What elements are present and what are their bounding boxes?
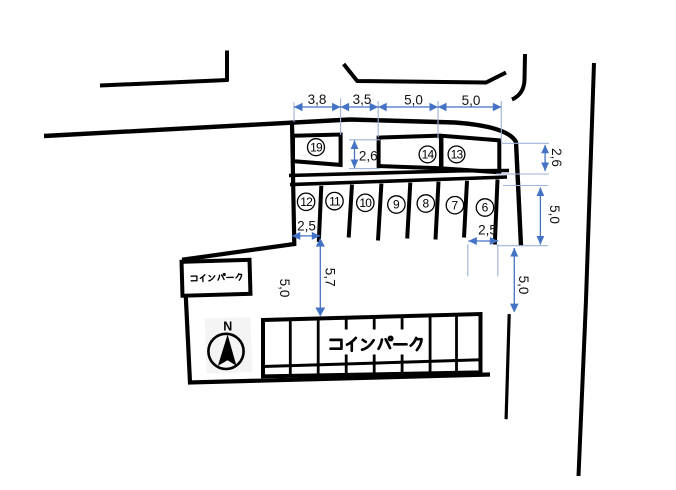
- svg-text:5,0: 5,0: [516, 276, 531, 295]
- svg-text:2,6: 2,6: [359, 149, 378, 164]
- svg-text:5,7: 5,7: [323, 268, 338, 287]
- svg-text:12: 12: [300, 195, 313, 209]
- svg-text:3,5: 3,5: [353, 92, 372, 107]
- svg-text:6: 6: [482, 201, 489, 215]
- svg-text:2,5: 2,5: [297, 219, 316, 234]
- svg-text:9: 9: [393, 198, 400, 212]
- svg-text:2,6: 2,6: [549, 148, 564, 167]
- svg-text:5,0: 5,0: [277, 279, 292, 298]
- svg-text:10: 10: [359, 196, 372, 210]
- svg-text:13: 13: [451, 148, 464, 162]
- svg-text:14: 14: [422, 148, 435, 162]
- svg-text:3,8: 3,8: [308, 92, 327, 107]
- svg-text:2,5: 2,5: [478, 223, 497, 238]
- svg-text:5,0: 5,0: [547, 205, 562, 224]
- svg-text:11: 11: [329, 194, 341, 208]
- svg-text:19: 19: [310, 140, 323, 154]
- svg-text:8: 8: [422, 197, 429, 211]
- svg-text:5,0: 5,0: [404, 93, 423, 108]
- svg-text:5,0: 5,0: [462, 93, 481, 108]
- svg-text:N: N: [223, 320, 232, 334]
- svg-text:7: 7: [452, 198, 459, 212]
